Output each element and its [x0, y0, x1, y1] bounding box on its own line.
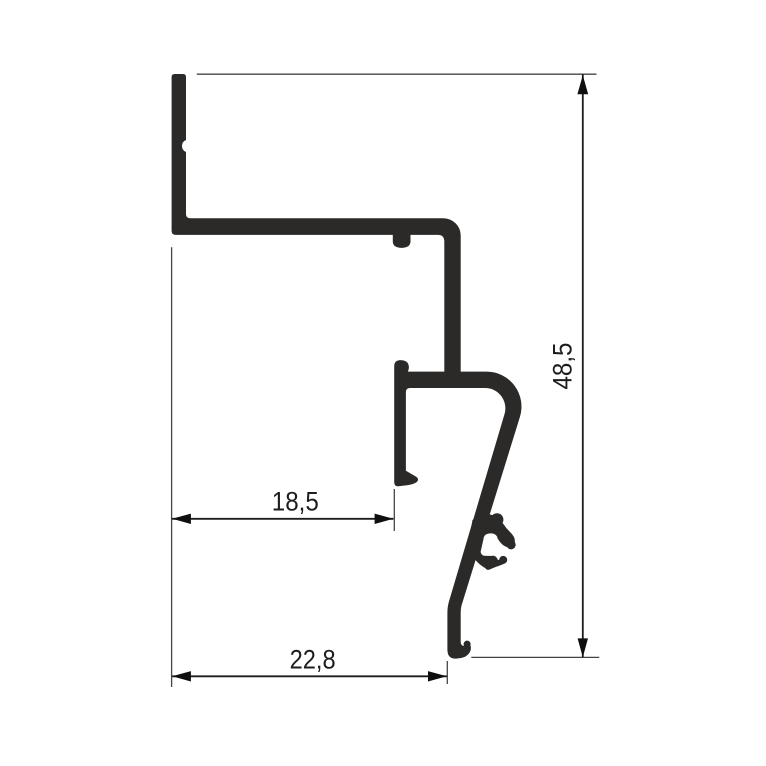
svg-text:22,8: 22,8 — [290, 645, 336, 675]
svg-text:48,5: 48,5 — [548, 343, 578, 390]
svg-text:18,5: 18,5 — [272, 487, 319, 517]
